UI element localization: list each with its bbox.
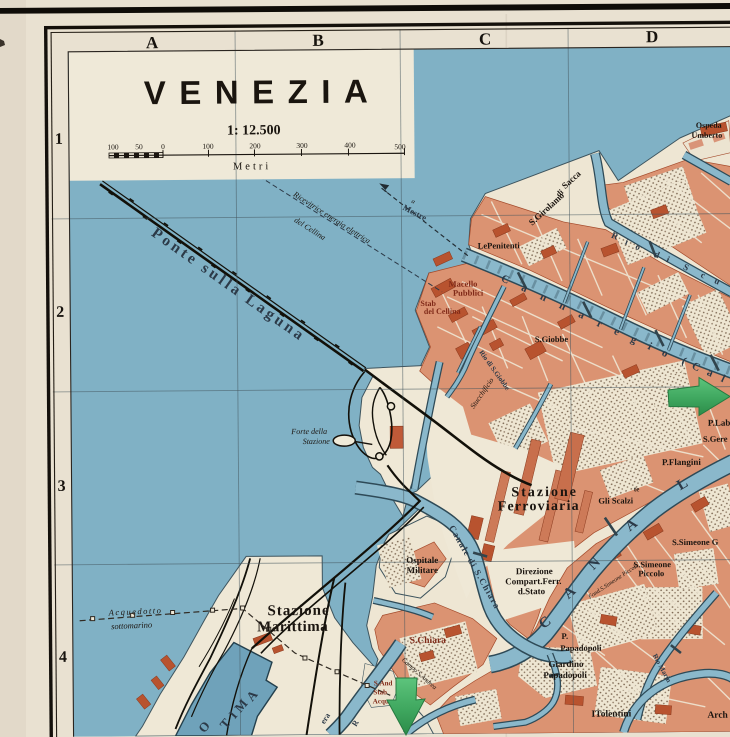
svg-text:S.And: S.And [374,679,393,687]
svg-text:50: 50 [135,142,143,151]
svg-text:te: te [634,485,640,493]
svg-text:D: D [646,27,658,46]
svg-text:400: 400 [344,141,356,150]
svg-text:Gli Scalzi: Gli Scalzi [598,495,633,505]
svg-text:100: 100 [107,142,119,151]
svg-text:300: 300 [296,141,308,150]
svg-text:Forte della: Forte della [290,427,327,436]
svg-text:del Cellina: del Cellina [424,307,461,316]
svg-text:Stazione: Stazione [267,603,329,619]
svg-text:Direzione: Direzione [516,566,553,576]
svg-text:Compart.Ferr.: Compart.Ferr. [505,576,561,586]
svg-text:Papadopoli: Papadopoli [543,670,587,680]
svg-text:Umberto: Umberto [692,131,723,140]
svg-text:200: 200 [249,141,261,150]
svg-text:Stab: Stab [373,688,387,696]
svg-text:A: A [146,33,159,52]
svg-text:sottomarino: sottomarino [111,619,152,631]
svg-text:Ospeda: Ospeda [696,121,722,130]
svg-text:P.Flangini: P.Flangini [662,457,702,467]
svg-text:S.Simeone G: S.Simeone G [672,537,719,547]
svg-text:B: B [312,31,323,50]
svg-text:Metri: Metri [233,161,271,172]
svg-text:d.Stato: d.Stato [518,586,546,596]
svg-text:0: 0 [161,142,165,151]
svg-text:Arch: Arch [707,711,728,721]
svg-text:P.Lab: P.Lab [708,418,730,428]
svg-text:Giardino: Giardino [548,659,584,669]
svg-text:S.Gere: S.Gere [703,434,728,444]
svg-text:Ferroviaria: Ferroviaria [498,499,580,515]
svg-text:VENEZIA: VENEZIA [144,72,382,111]
svg-text:1: 1 [55,131,63,148]
svg-text:Militare: Militare [407,565,438,575]
svg-text:S.Chiara: S.Chiara [410,636,446,646]
svg-text:Pubblici: Pubblici [453,288,484,298]
svg-text:ITolentini: ITolentini [591,709,631,719]
svg-text:Stazione: Stazione [303,437,331,446]
svg-text:100: 100 [202,142,214,151]
svg-text:Papadopoli: Papadopoli [560,643,602,653]
svg-text:3: 3 [58,478,66,495]
svg-text:4: 4 [59,649,67,666]
svg-text:P.: P. [561,631,568,641]
svg-text:LePenitenti: LePenitenti [478,240,521,250]
svg-text:Piccolo: Piccolo [638,568,664,578]
svg-text:500: 500 [394,142,406,151]
svg-text:2: 2 [56,304,64,321]
svg-text:C: C [479,29,491,48]
svg-text:1: 12.500: 1: 12.500 [227,123,281,138]
svg-text:Marittima: Marittima [257,619,328,636]
svg-text:S.Giobbe: S.Giobbe [535,334,569,344]
svg-text:Ospitale: Ospitale [406,555,438,565]
